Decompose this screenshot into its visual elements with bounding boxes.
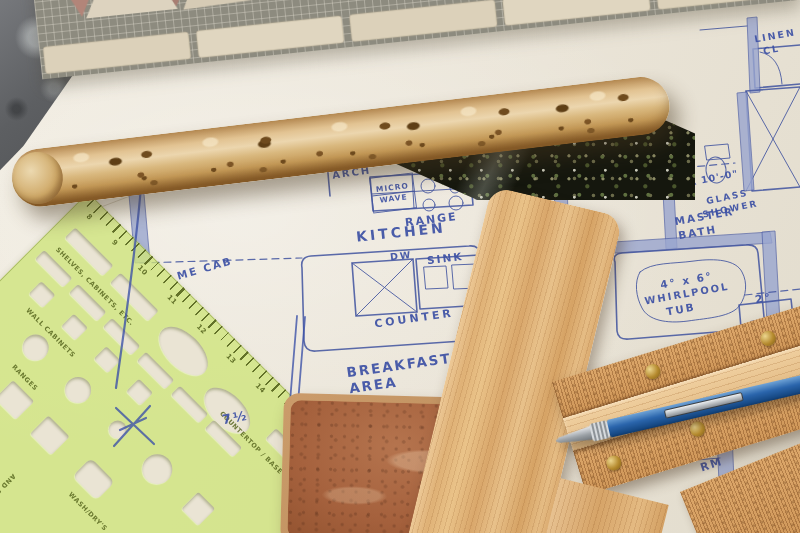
photo-scene: ARCH MICRO WAVE RANGE KITCHEN DW SINK CO… xyxy=(0,0,800,533)
